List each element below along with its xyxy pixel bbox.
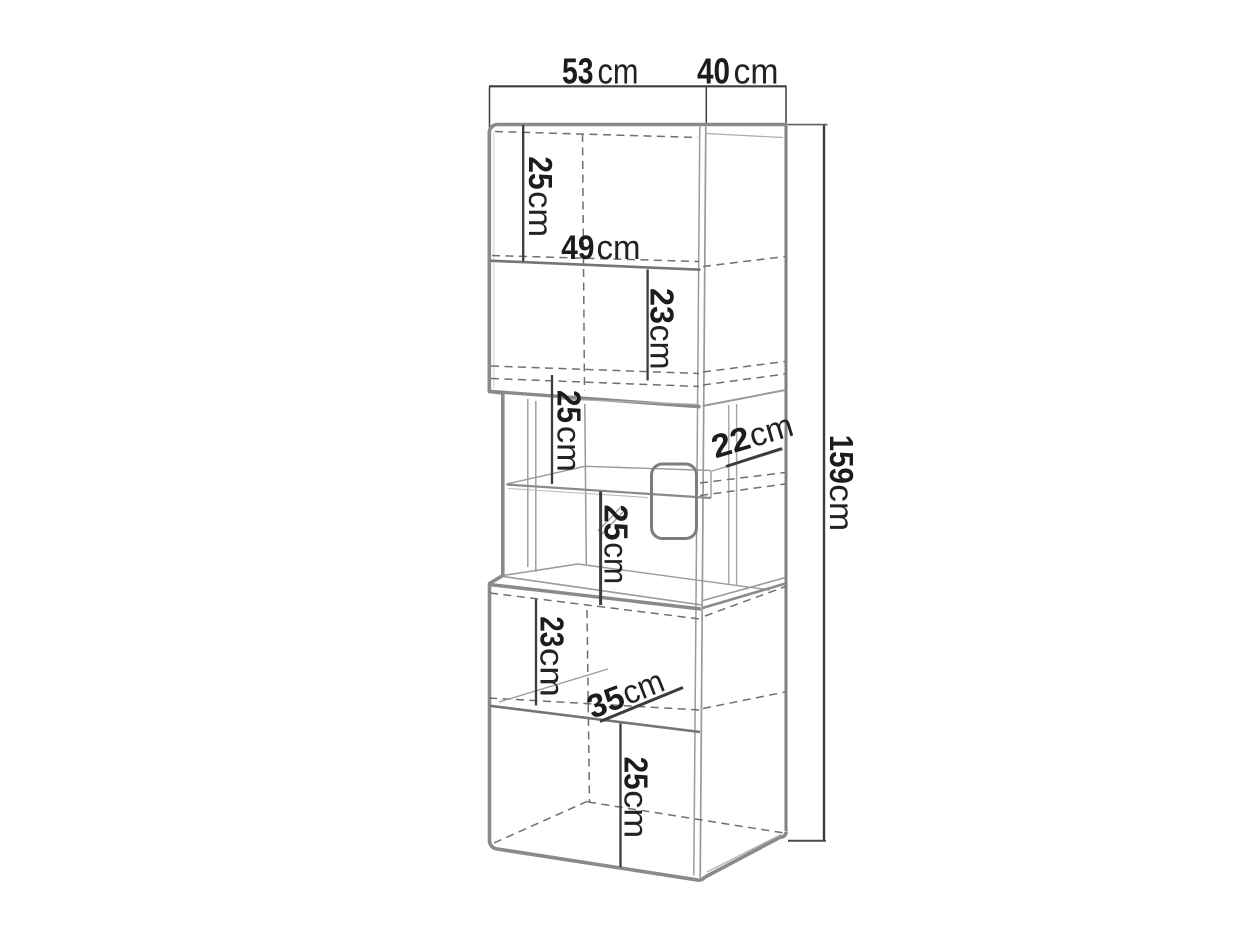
svg-text:cm: cm (597, 229, 641, 267)
svg-text:cm: cm (597, 542, 634, 584)
svg-text:cm: cm (617, 790, 654, 838)
svg-text:23: 23 (644, 288, 681, 324)
svg-text:23: 23 (534, 616, 571, 647)
svg-text:159: 159 (823, 435, 860, 484)
svg-text:49: 49 (561, 229, 594, 267)
svg-text:53: 53 (562, 51, 594, 92)
svg-text:cm: cm (550, 426, 587, 472)
svg-text:cm: cm (598, 51, 639, 92)
svg-text:cm: cm (534, 648, 571, 697)
svg-text:25: 25 (550, 390, 587, 423)
svg-text:40: 40 (697, 51, 730, 92)
svg-text:25: 25 (522, 156, 559, 189)
svg-text:25: 25 (597, 505, 634, 541)
svg-text:cm: cm (734, 51, 779, 92)
svg-text:cm: cm (823, 484, 860, 531)
svg-text:25: 25 (617, 757, 654, 790)
svg-text:cm: cm (522, 191, 559, 237)
svg-text:cm: cm (644, 325, 681, 370)
